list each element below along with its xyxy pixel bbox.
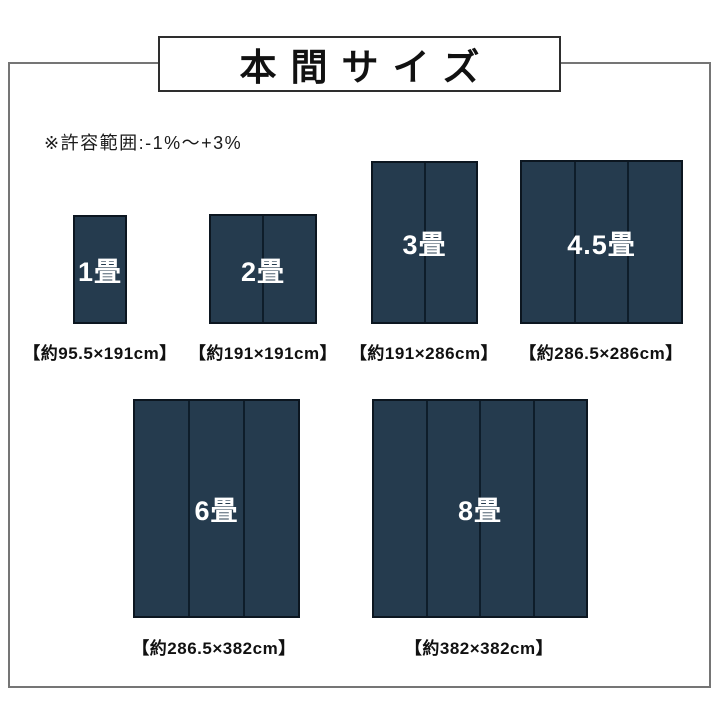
mat-rect-8jo: 8畳 (372, 399, 588, 618)
mat-dimension-label: 【約286.5×286cm】 (471, 339, 720, 364)
size-chart-canvas: 本間サイズ ※許容範囲:-1%〜+3% 1畳【約95.5×191cm】2畳【約1… (0, 0, 720, 720)
mat-panel (135, 401, 188, 616)
mat-panel (479, 401, 533, 616)
mat-panel (574, 162, 628, 322)
mat-panel (522, 162, 574, 322)
mat-rect-1jo: 1畳 (73, 215, 127, 324)
mat-rect-6jo: 6畳 (133, 399, 300, 618)
mat-rect-2jo: 2畳 (209, 214, 317, 324)
mat-panel (243, 401, 298, 616)
mat-panel (262, 216, 315, 322)
mat-panel (373, 163, 424, 322)
mat-panel (426, 401, 480, 616)
mat-dimension-label: 【約382×382cm】 (349, 634, 609, 659)
tolerance-note: ※許容範囲:-1%〜+3% (44, 129, 242, 155)
mat-dimension-label: 【約286.5×382cm】 (84, 634, 344, 659)
mat-panel (627, 162, 681, 322)
mat-panel (188, 401, 243, 616)
mat-rect-4_5jo: 4.5畳 (520, 160, 683, 324)
mat-rect-3jo: 3畳 (371, 161, 478, 324)
outer-frame (8, 62, 711, 688)
mat-panel (533, 401, 587, 616)
page-title: 本間サイズ (226, 37, 494, 91)
mat-panel (75, 217, 125, 322)
mat-panel (374, 401, 426, 616)
mat-panel (211, 216, 262, 322)
title-box: 本間サイズ (158, 36, 561, 92)
mat-panel (424, 163, 477, 322)
